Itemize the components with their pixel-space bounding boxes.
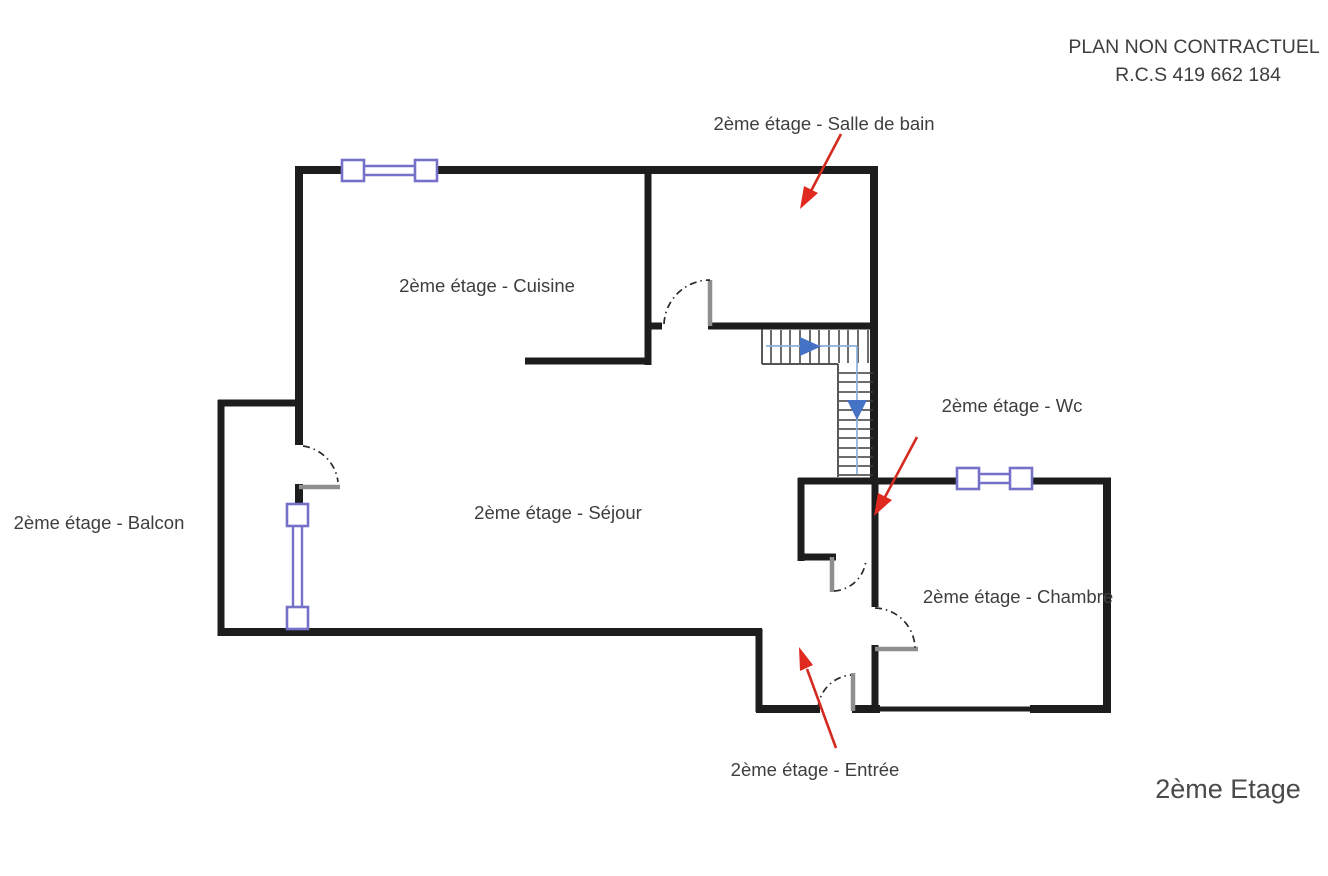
- arrow-to-wc: [874, 437, 917, 516]
- red-annotation-arrows: [799, 134, 917, 748]
- staircase: [762, 329, 873, 477]
- floor-plan-svg: 2ème étage - Salle de bain 2ème étage - …: [0, 0, 1328, 876]
- window-end-cap: [415, 160, 437, 181]
- room-label-sejour: 2ème étage - Séjour: [474, 502, 642, 523]
- room-label-salle-de-bain: 2ème étage - Salle de bain: [713, 113, 934, 134]
- entrance-door-arc: [818, 675, 851, 708]
- arrow-to-entree: [799, 647, 836, 748]
- walls: [218, 166, 1111, 713]
- window-end-cap: [342, 160, 364, 181]
- floor-plan-canvas: 2ème étage - Salle de bain 2ème étage - …: [0, 0, 1328, 876]
- window-end-cap: [1010, 468, 1032, 489]
- red-arrowhead-icon: [799, 647, 813, 671]
- wall-openings: [290, 161, 1024, 609]
- doors: [299, 280, 918, 711]
- red-arrowhead-icon: [800, 186, 818, 209]
- room-label-entree: 2ème étage - Entrée: [731, 759, 900, 780]
- bathroom-door-arc: [664, 280, 710, 324]
- room-label-balcon: 2ème étage - Balcon: [14, 512, 185, 533]
- room-label-wc: 2ème étage - Wc: [942, 395, 1083, 416]
- window-end-cap: [287, 504, 308, 526]
- windows: [287, 160, 1032, 629]
- wc-door-arc: [834, 559, 866, 591]
- balcony-door-arc: [303, 446, 338, 482]
- room-label-chambre: 2ème étage - Chambre: [923, 586, 1113, 607]
- door-swing-arcs: [303, 280, 915, 708]
- chamber-door-arc: [875, 608, 915, 648]
- room-label-cuisine: 2ème étage - Cuisine: [399, 275, 575, 296]
- window-end-cap: [957, 468, 979, 489]
- disclaimer-line1: PLAN NON CONTRACTUEL: [1068, 36, 1320, 58]
- floor-title: 2ème Etage: [1155, 774, 1301, 804]
- window-end-cap: [287, 607, 308, 629]
- door-leaves: [299, 280, 918, 711]
- opening-balcony-door: [292, 445, 306, 484]
- disclaimer-line2: R.C.S 419 662 184: [1115, 64, 1281, 86]
- stair-treads-vertical-flight: [839, 373, 873, 475]
